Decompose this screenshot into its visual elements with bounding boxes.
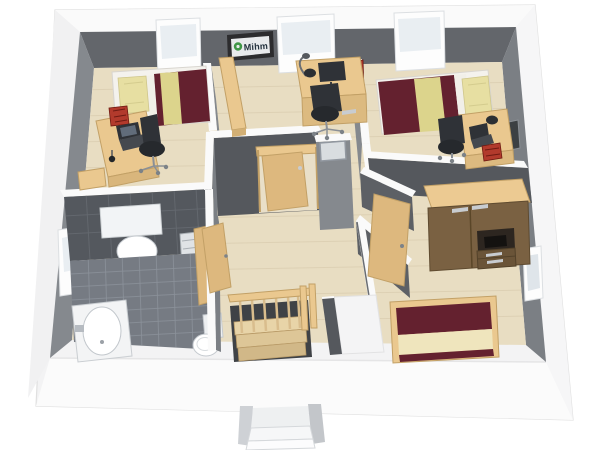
window-north-bedroom-right <box>394 11 445 71</box>
red-storage-box <box>482 143 502 161</box>
desk-speaker <box>304 69 316 78</box>
floorplan-canvas: Mihm <box>0 0 600 450</box>
stub-wall-top <box>322 297 334 298</box>
door-handle <box>224 254 228 258</box>
staircase <box>234 316 307 361</box>
newel-post <box>309 284 317 328</box>
wardrobe <box>424 179 530 271</box>
south-dormer <box>238 404 325 450</box>
floorplan-render: Mihm <box>0 0 600 450</box>
red-storage-box <box>109 106 129 126</box>
glass-panel <box>320 141 346 161</box>
sideboard <box>78 168 106 190</box>
dormer-back <box>251 406 310 428</box>
office-door <box>262 152 308 211</box>
niche-item <box>484 235 507 248</box>
bathtub <box>72 300 132 362</box>
door-handle <box>400 244 404 248</box>
pillow <box>462 76 492 117</box>
wall-sign: Mihm <box>227 31 274 61</box>
dormer-step <box>248 426 313 441</box>
tub-faucet <box>75 325 84 332</box>
tub-drain <box>100 340 104 344</box>
chimney-block <box>334 295 384 354</box>
newel-post <box>300 286 308 330</box>
mirror <box>100 204 162 238</box>
sign-text: Mihm <box>243 41 268 53</box>
door-handle <box>298 166 302 170</box>
sign-logo-dot <box>236 45 239 48</box>
double-bed <box>390 296 499 363</box>
dormer-step <box>246 439 315 450</box>
open-door <box>368 194 410 286</box>
bathroom <box>60 182 223 362</box>
desk-speaker <box>486 116 498 125</box>
